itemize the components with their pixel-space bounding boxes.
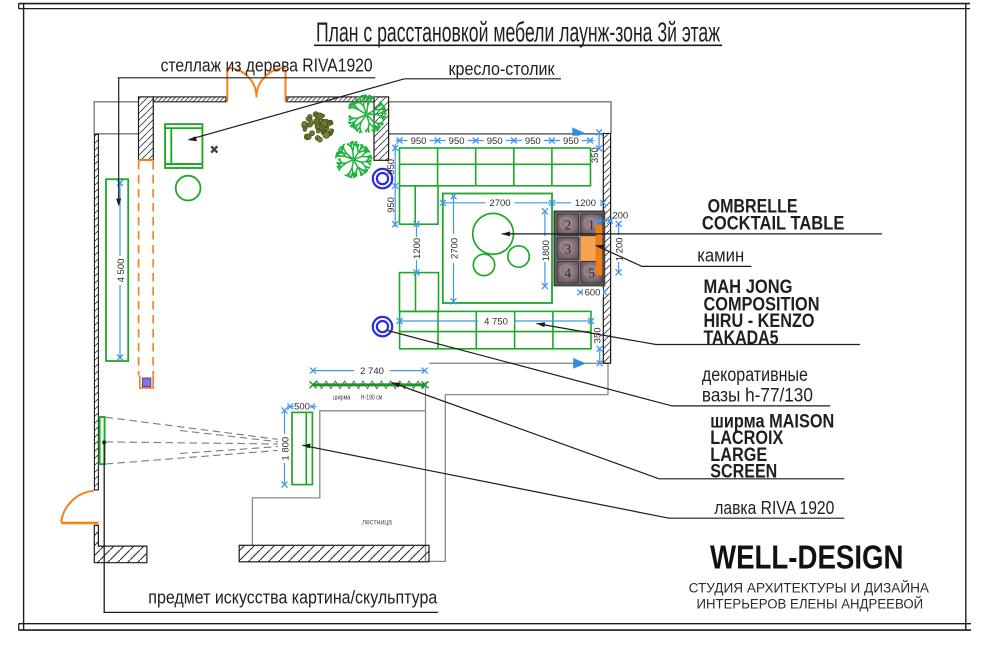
- svg-text:1200: 1200: [575, 198, 596, 209]
- svg-text:Н-190 см: Н-190 см: [361, 392, 383, 401]
- svg-text:WELL-DESIGN: WELL-DESIGN: [710, 539, 904, 576]
- svg-text:950: 950: [487, 136, 503, 147]
- svg-text:1 800: 1 800: [280, 437, 291, 461]
- svg-text:4 750: 4 750: [484, 316, 508, 327]
- svg-text:1800: 1800: [541, 240, 552, 261]
- svg-text:950: 950: [386, 197, 397, 213]
- svg-text:ширма: ширма: [333, 392, 351, 401]
- svg-text:950: 950: [411, 136, 427, 147]
- svg-text:2700: 2700: [489, 198, 510, 209]
- svg-text:2700: 2700: [449, 238, 460, 259]
- svg-text:1200: 1200: [412, 238, 423, 259]
- svg-text:камин: камин: [697, 245, 744, 265]
- svg-text:COCKTAIL TABLE: COCKTAIL TABLE: [702, 214, 845, 235]
- svg-text:предмет искусства картина/скул: предмет искусства картина/скульптура: [148, 587, 438, 607]
- svg-text:План с расстановкой мебели лау: План с расстановкой мебели лаунж-зона 3й…: [316, 17, 720, 48]
- svg-text:5: 5: [588, 265, 595, 280]
- svg-text:1: 1: [588, 218, 595, 233]
- svg-text:лавка RIVA 1920: лавка RIVA 1920: [714, 498, 834, 518]
- svg-text:TAKADA5: TAKADA5: [704, 328, 779, 349]
- svg-text:3: 3: [564, 241, 571, 256]
- svg-text:лестница: лестница: [362, 517, 392, 527]
- svg-text:950: 950: [449, 136, 465, 147]
- svg-text:стеллаж из дерева RIVA1920: стеллаж из дерева RIVA1920: [161, 56, 373, 76]
- svg-text:950: 950: [525, 136, 541, 147]
- svg-text:950: 950: [563, 136, 579, 147]
- svg-text:4 500: 4 500: [116, 259, 127, 283]
- svg-text:350: 350: [590, 147, 601, 163]
- svg-text:950: 950: [386, 159, 397, 175]
- svg-text:кресло-столик: кресло-столик: [449, 59, 555, 79]
- svg-text:декоративные: декоративные: [702, 365, 808, 386]
- svg-text:ИНТЕРЬЕРОВ ЕЛЕНЫ АНДРЕЕВОЙ: ИНТЕРЬЕРОВ ЕЛЕНЫ АНДРЕЕВОЙ: [697, 597, 924, 612]
- svg-text:СТУДИЯ АРХИТЕКТУРЫ И ДИЗАЙНА: СТУДИЯ АРХИТЕКТУРЫ И ДИЗАЙНА: [689, 581, 929, 596]
- svg-text:200: 200: [612, 211, 628, 222]
- svg-text:вазы h-77/130: вазы h-77/130: [702, 386, 813, 407]
- svg-text:2: 2: [564, 218, 571, 233]
- svg-text:600: 600: [585, 288, 601, 299]
- svg-text:500: 500: [294, 402, 310, 413]
- svg-text:4: 4: [564, 265, 571, 280]
- svg-text:2 740: 2 740: [360, 366, 384, 377]
- svg-text:SCREEN: SCREEN: [710, 461, 777, 482]
